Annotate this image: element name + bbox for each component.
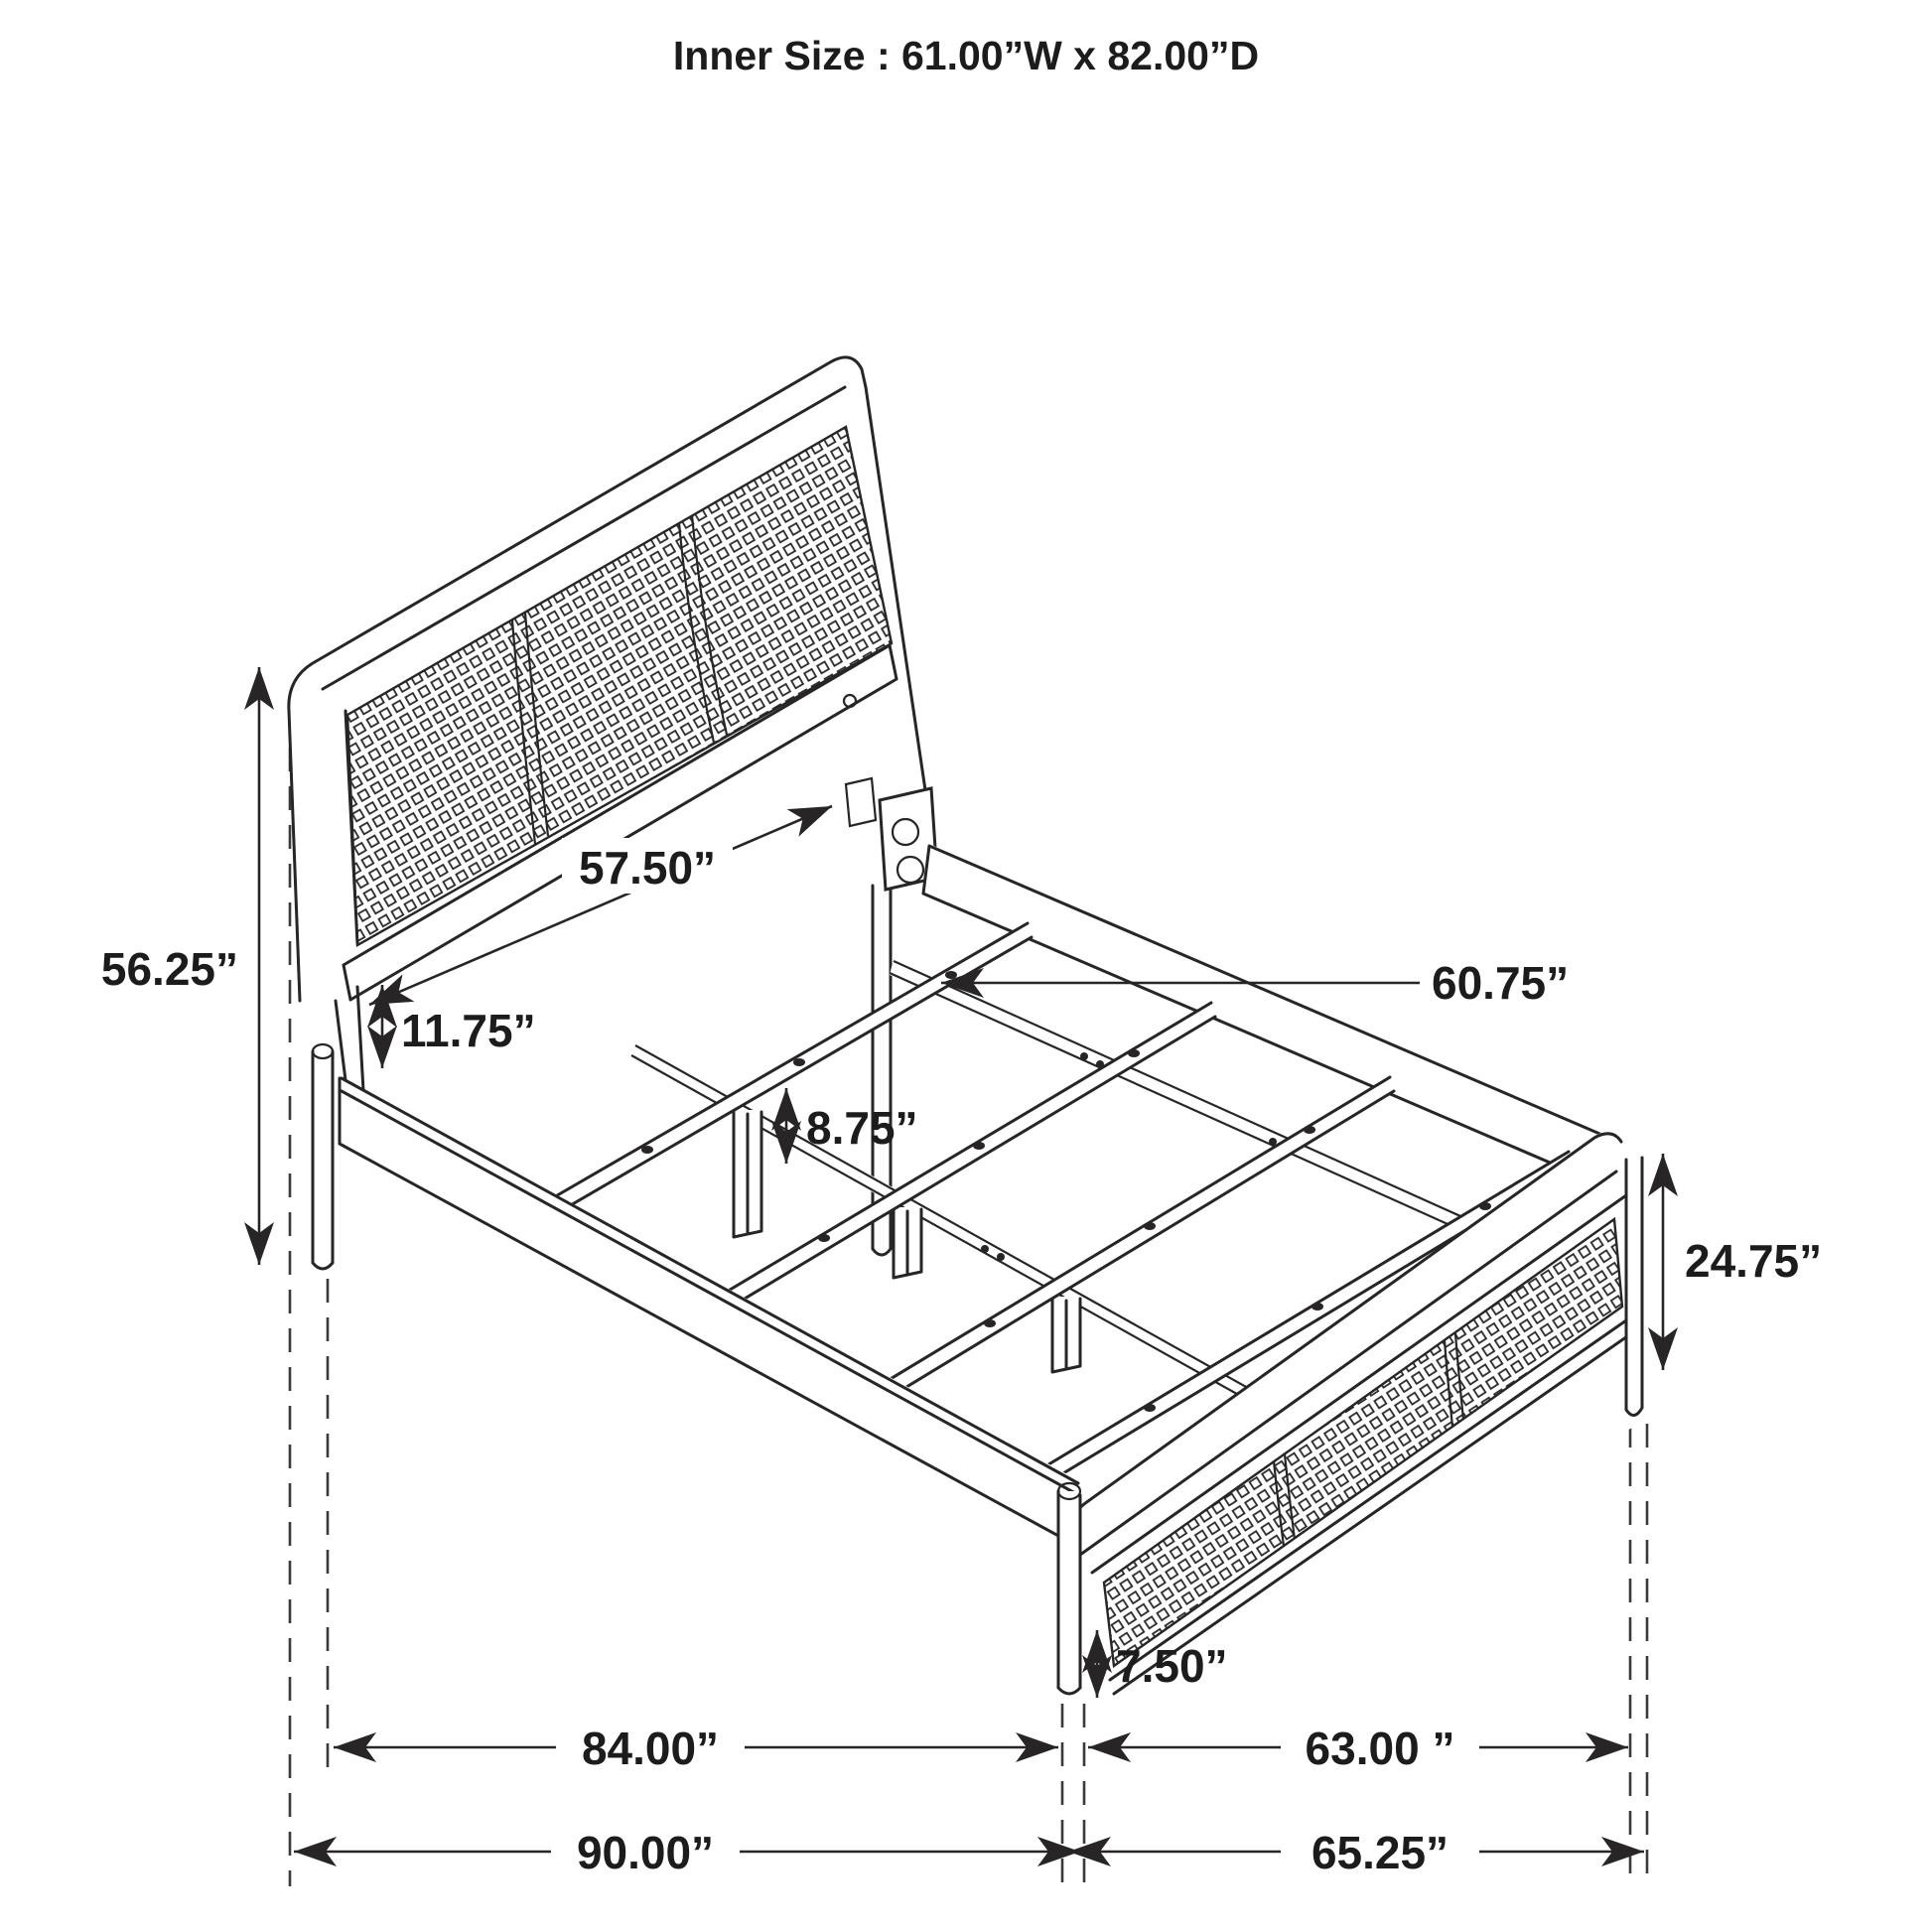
dim-label-overall-width: 65.25” [1311, 1827, 1449, 1878]
dim-label-headboard-width: 57.50” [579, 842, 716, 894]
dim-label-footboard-height: 24.75” [1685, 1235, 1822, 1287]
diagram-canvas: 56.25” 11.75” 57.50” 8.75” 60.75” 24.75”… [0, 0, 1932, 1932]
dim-label-overall-length: 90.00” [577, 1827, 714, 1878]
dim-label-rail-gap: 11.75” [401, 1005, 536, 1056]
dim-label-support-leg: 8.75” [806, 1102, 918, 1154]
dim-label-center-rail: 60.75” [1432, 957, 1569, 1009]
dim-label-footboard-clearance: 7.50” [1116, 1640, 1228, 1692]
dim-label-headboard-height: 56.25” [101, 943, 238, 995]
dim-label-footboard-span: 63.00 ” [1306, 1723, 1455, 1774]
page-title: Inner Size : 61.00”W x 82.00”D [673, 33, 1259, 78]
dim-label-inner-length: 84.00” [582, 1723, 719, 1774]
second-rail-joint-bolt [981, 1245, 989, 1253]
center-rail-joint-bolt [1080, 1052, 1088, 1060]
second-rail-joint-bolt [997, 1253, 1005, 1261]
headboard-front-leg [313, 1044, 333, 1269]
center-rail-joint-bolt [1269, 1138, 1277, 1146]
bed-dimension-diagram: 56.25” 11.75” 57.50” 8.75” 60.75” 24.75”… [0, 0, 1932, 1932]
